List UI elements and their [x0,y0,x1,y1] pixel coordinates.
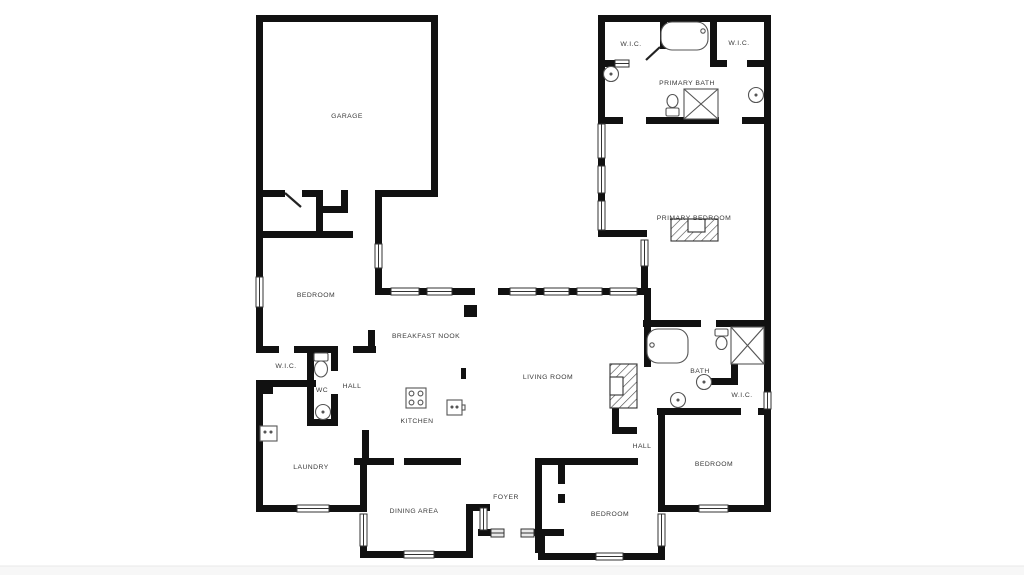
window-icon [641,240,648,266]
window-icon [615,60,629,67]
window-icon [699,505,728,512]
window-icon [596,553,623,560]
room-label-bedroom-right: BEDROOM [695,461,733,468]
room-label-primary-bath: PRIMARY BATH [659,80,715,87]
kitchen-sink-icon [447,400,465,415]
window-icon [658,514,665,546]
sidelight-icon [491,529,504,537]
room-label-hall-left: HALL [343,383,362,390]
column-icon [461,368,466,379]
fireplace-icon [671,219,718,241]
room-label-wic-primary-right: W.I.C. [728,40,749,47]
round-sink-icon [697,375,712,390]
room-label-wic-primary-left: W.I.C. [620,41,641,48]
room-label-bath: BATH [690,368,709,375]
window-icon [577,288,602,295]
room-label-foyer: FOYER [493,494,519,501]
column-icon [464,305,477,317]
footer-strip [0,566,1024,575]
round-sink-icon [671,393,686,408]
room-label-kitchen: KITCHEN [401,418,434,425]
shower-icon [684,89,718,119]
round-sink-icon [604,67,619,82]
window-icon [510,288,536,295]
bathtub-icon [647,329,688,363]
round-sink-icon [749,88,764,103]
window-icon [427,288,452,295]
window-icon [391,288,419,295]
toilet-icon [715,329,728,350]
room-label-garage: GARAGE [331,113,363,120]
sidelight-icon [521,529,534,537]
room-label-wc: WC [316,387,328,394]
window-icon [598,201,605,230]
room-label-breakfast-nook: BREAKFAST NOOK [392,333,460,340]
fireplace-icon [610,364,637,408]
room-label-primary-bedroom: PRIMARY BEDROOM [657,215,731,222]
window-icon [375,244,382,268]
room-label-wic-right: W.I.C. [731,392,752,399]
window-icon [598,166,605,193]
shower-icon [731,327,764,364]
washer-icon [260,426,277,441]
window-icon [360,514,367,546]
room-label-living-room: LIVING ROOM [523,374,573,381]
window-icon [764,392,771,409]
room-label-bedroom-bottom: BEDROOM [591,511,629,518]
window-icon [404,551,434,558]
toilet-icon [666,95,679,117]
floor-plan: GARAGE BEDROOM W.I.C. WC HALL BREAKFAST … [0,0,1024,575]
window-icon [256,277,263,307]
room-label-dining-area: DINING AREA [390,508,439,515]
round-sink-icon [316,405,331,420]
toilet-icon [314,353,328,377]
window-icon [480,508,487,530]
window-icon [598,124,605,158]
window-icon [544,288,569,295]
window-icon [297,505,329,512]
cooktop-icon [406,388,426,408]
room-label-bedroom-left: BEDROOM [297,292,335,299]
room-label-hall-right: HALL [633,443,652,450]
bathtub-icon [661,22,708,50]
room-label-laundry: LAUNDRY [293,464,329,471]
window-icon [610,288,637,295]
room-label-wic-left: W.I.C. [275,363,296,370]
floor-plan-drawing: GARAGE BEDROOM W.I.C. WC HALL BREAKFAST … [0,0,1024,575]
